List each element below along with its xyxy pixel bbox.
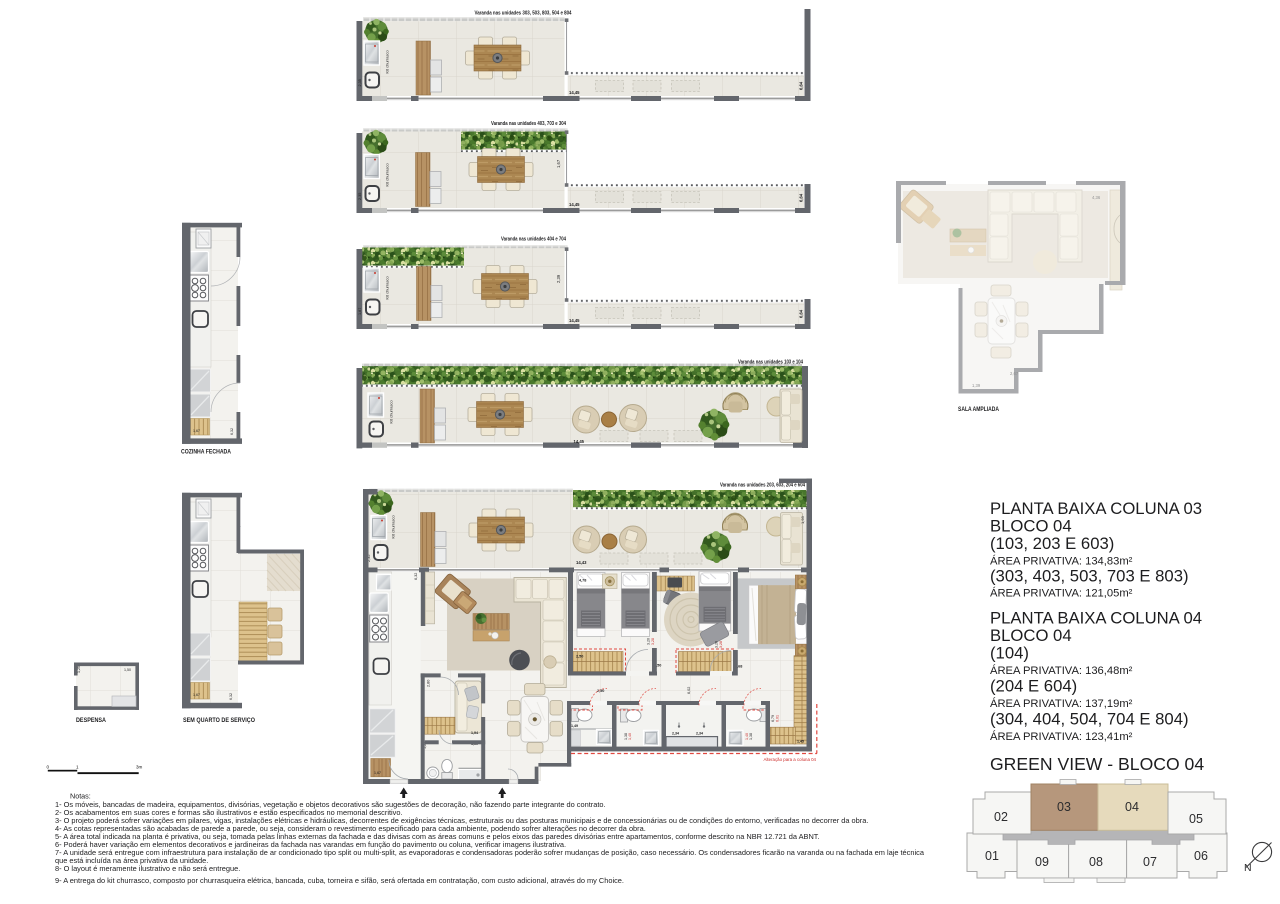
svg-text:DESPENSA: DESPENSA xyxy=(76,718,107,724)
svg-text:14,43: 14,43 xyxy=(576,560,587,565)
svg-text:6,32: 6,32 xyxy=(230,428,234,435)
svg-text:3,28: 3,28 xyxy=(651,638,655,645)
svg-text:1,38: 1,38 xyxy=(749,733,753,740)
svg-text:6,02: 6,02 xyxy=(687,687,691,694)
svg-text:05: 05 xyxy=(1189,812,1203,826)
svg-text:6,01: 6,01 xyxy=(776,715,780,722)
svg-text:(104): (104) xyxy=(990,644,1029,663)
svg-text:03: 03 xyxy=(1057,800,1071,814)
svg-text:02: 02 xyxy=(994,810,1008,824)
svg-text:Kit churrasco: Kit churrasco xyxy=(385,50,390,74)
svg-text:1,93: 1,93 xyxy=(800,515,805,524)
svg-text:3,20: 3,20 xyxy=(647,638,651,645)
svg-text:14,45: 14,45 xyxy=(569,318,580,323)
svg-text:3,28: 3,28 xyxy=(719,641,723,648)
svg-text:ÁREA PRIVATIVA: 123,41m²: ÁREA PRIVATIVA: 123,41m² xyxy=(990,730,1133,743)
svg-text:01: 01 xyxy=(985,849,999,863)
svg-text:1,67: 1,67 xyxy=(193,429,200,433)
svg-text:06: 06 xyxy=(1194,849,1208,863)
svg-text:2,80: 2,80 xyxy=(427,680,431,687)
svg-text:ÁREA PRIVATIVA: 121,05m²: ÁREA PRIVATIVA: 121,05m² xyxy=(990,587,1133,600)
svg-text:SALA AMPLIADA: SALA AMPLIADA xyxy=(958,407,1000,413)
svg-text:14,45: 14,45 xyxy=(569,90,580,95)
svg-text:(204 E 604): (204 E 604) xyxy=(990,677,1077,696)
svg-text:2,50: 2,50 xyxy=(597,689,604,693)
svg-text:1,50: 1,50 xyxy=(124,668,131,672)
svg-text:07: 07 xyxy=(1143,855,1157,869)
svg-text:4,36: 4,36 xyxy=(1092,195,1101,200)
svg-text:8- O layout é meramente ilustr: 8- O layout é meramente ilustrativo e nã… xyxy=(55,864,240,873)
svg-text:(303, 403, 503, 703 E 803): (303, 403, 503, 703 E 803) xyxy=(990,567,1189,586)
svg-text:GREEN VIEW - BLOCO 04: GREEN VIEW - BLOCO 04 xyxy=(990,754,1204,774)
svg-text:6,79: 6,79 xyxy=(771,715,775,722)
svg-text:(103, 203 E 603): (103, 203 E 603) xyxy=(990,534,1114,553)
svg-text:08: 08 xyxy=(1089,855,1103,869)
svg-text:1,87: 1,87 xyxy=(358,308,362,315)
svg-text:3,20: 3,20 xyxy=(715,641,719,648)
svg-text:BLOCO 04: BLOCO 04 xyxy=(990,517,1072,536)
svg-text:0: 0 xyxy=(47,764,50,769)
svg-text:1,94: 1,94 xyxy=(471,731,478,735)
svg-text:2,35: 2,35 xyxy=(358,193,362,200)
svg-text:2,34: 2,34 xyxy=(672,732,679,736)
svg-text:14,45: 14,45 xyxy=(569,202,580,207)
svg-text:1,49: 1,49 xyxy=(571,724,578,728)
svg-text:Alteração para a coluna 04: Alteração para a coluna 04 xyxy=(764,757,817,762)
svg-text:COZINHA FECHADA: COZINHA FECHADA xyxy=(181,450,232,456)
svg-text:SEM QUARTO DE SERVIÇO: SEM QUARTO DE SERVIÇO xyxy=(183,718,255,724)
svg-text:BLOCO 04: BLOCO 04 xyxy=(990,626,1072,645)
svg-text:14,45: 14,45 xyxy=(574,439,585,444)
svg-text:Varanda nas unidades 203, 603,: Varanda nas unidades 203, 603, 204 e 604 xyxy=(720,483,805,489)
svg-text:09: 09 xyxy=(1035,855,1049,869)
svg-text:4,78: 4,78 xyxy=(579,579,586,583)
svg-text:2,35: 2,35 xyxy=(358,79,362,86)
svg-text:6,32: 6,32 xyxy=(414,573,418,580)
svg-text:9- A entrega do kit churrasco,: 9- A entrega do kit churrasco, composto … xyxy=(55,876,624,885)
svg-text:6,64: 6,64 xyxy=(799,193,804,202)
svg-text:PLANTA BAIXA COLUNA 03: PLANTA BAIXA COLUNA 03 xyxy=(990,499,1202,518)
svg-text:Varanda nas unidades 403, 703: Varanda nas unidades 403, 703 e 304 xyxy=(491,121,566,127)
svg-text:3m: 3m xyxy=(136,764,143,769)
svg-text:Kit churrasco: Kit churrasco xyxy=(385,163,390,187)
svg-text:Varanda nas unidades 404 e 704: Varanda nas unidades 404 e 704 xyxy=(501,237,566,243)
svg-text:1,40: 1,40 xyxy=(628,733,632,740)
svg-text:Kit churrasco: Kit churrasco xyxy=(389,400,394,424)
svg-text:N: N xyxy=(1244,862,1252,874)
svg-text:6,64: 6,64 xyxy=(799,81,804,90)
svg-text:1: 1 xyxy=(76,764,79,769)
svg-text:2,50: 2,50 xyxy=(576,655,583,659)
svg-text:1,25: 1,25 xyxy=(77,666,81,673)
svg-text:ÁREA PRIVATIVA: 137,19m²: ÁREA PRIVATIVA: 137,19m² xyxy=(990,697,1133,710)
svg-text:6,64: 6,64 xyxy=(799,309,804,318)
svg-text:Kit churrasco: Kit churrasco xyxy=(385,276,390,300)
svg-text:1,67: 1,67 xyxy=(556,159,561,168)
svg-text:2,67: 2,67 xyxy=(1010,371,1019,376)
svg-text:04: 04 xyxy=(1125,800,1139,814)
svg-text:2,39: 2,39 xyxy=(556,274,561,283)
svg-text:6,32: 6,32 xyxy=(229,693,233,700)
svg-text:1,67: 1,67 xyxy=(193,693,200,697)
svg-text:2,34: 2,34 xyxy=(696,732,703,736)
svg-text:PLANTA BAIXA COLUNA 04: PLANTA BAIXA COLUNA 04 xyxy=(990,609,1202,628)
svg-text:1,38: 1,38 xyxy=(624,733,628,740)
svg-text:1,45: 1,45 xyxy=(797,740,804,744)
svg-text:(304, 404, 504, 704 E 804): (304, 404, 504, 704 E 804) xyxy=(990,710,1189,729)
svg-text:Kit churrasco: Kit churrasco xyxy=(391,515,396,539)
svg-text:1,67: 1,67 xyxy=(374,771,381,775)
svg-text:1,39: 1,39 xyxy=(972,383,981,388)
svg-text:Varanda nas unidades 303, 503,: Varanda nas unidades 303, 503, 803, 504 … xyxy=(475,11,572,17)
svg-text:ÁREA PRIVATIVA: 136,48m²: ÁREA PRIVATIVA: 136,48m² xyxy=(990,664,1133,677)
